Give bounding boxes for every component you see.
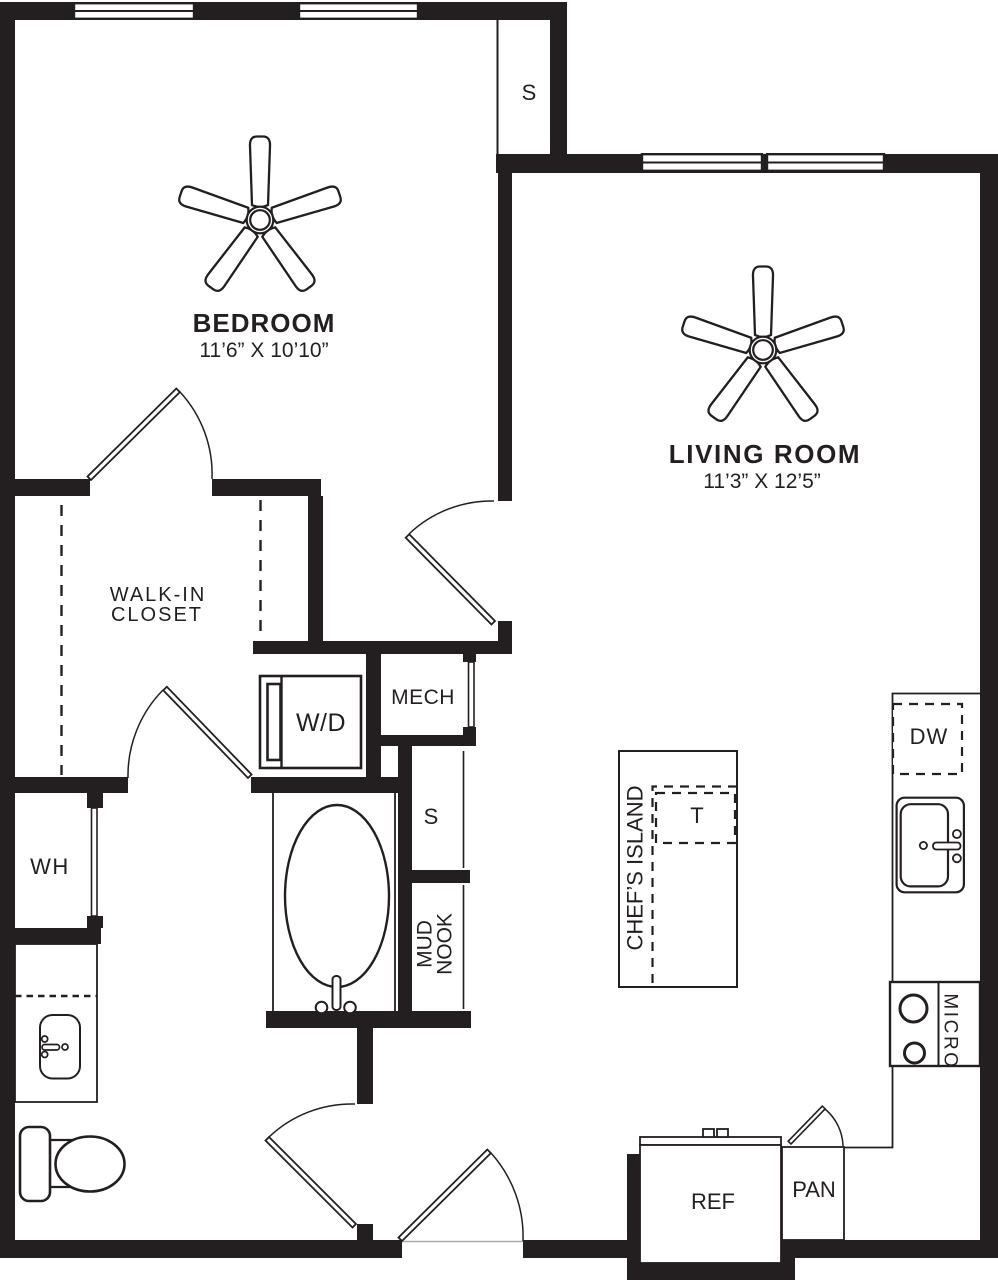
svg-text:W/D: W/D	[296, 709, 346, 737]
svg-text:MICRO: MICRO	[940, 993, 961, 1069]
svg-text:11’6” X 10’10”: 11’6” X 10’10”	[199, 339, 328, 362]
svg-text:LIVING ROOM: LIVING ROOM	[669, 439, 861, 469]
svg-text:S: S	[424, 804, 439, 829]
svg-text:REF: REF	[691, 1189, 735, 1214]
svg-text:DW: DW	[910, 724, 949, 749]
svg-text:MECH: MECH	[391, 686, 455, 709]
svg-text:WH: WH	[30, 854, 70, 879]
svg-text:CHEF’S ISLAND: CHEF’S ISLAND	[623, 785, 648, 950]
svg-text:CLOSET: CLOSET	[111, 604, 203, 626]
svg-text:NOOK: NOOK	[434, 913, 457, 975]
svg-text:BEDROOM: BEDROOM	[193, 308, 336, 338]
svg-text:PAN: PAN	[792, 1177, 836, 1202]
svg-text:11’3” X 12’5”: 11’3” X 12’5”	[703, 470, 821, 493]
svg-text:WALK-IN: WALK-IN	[110, 584, 207, 606]
svg-text:S: S	[522, 80, 537, 105]
svg-text:T: T	[690, 803, 703, 828]
